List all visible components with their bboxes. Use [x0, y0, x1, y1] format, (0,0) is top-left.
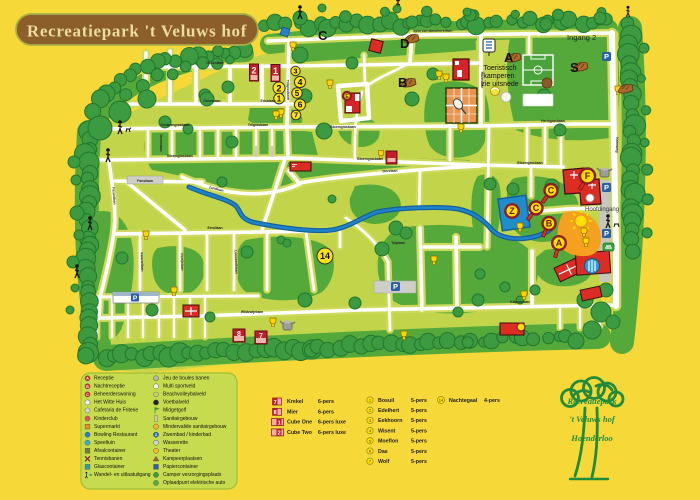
svg-text:Sanitairgebouw: Sanitairgebouw — [163, 416, 198, 422]
svg-text:Eendlaan: Eendlaan — [207, 226, 222, 230]
svg-text:Het Witte Huis: Het Witte Huis — [94, 400, 126, 406]
svg-text:Beachvolleybalveld: Beachvolleybalveld — [163, 392, 206, 398]
svg-text:Cafetaria de Friterie: Cafetaria de Friterie — [94, 408, 138, 414]
svg-text:Supermarkt: Supermarkt — [94, 424, 120, 430]
svg-text:Nachtreceptie: Nachtreceptie — [94, 384, 125, 390]
svg-text:Ossenlaan: Ossenlaan — [159, 134, 163, 151]
svg-text:Wisent: Wisent — [378, 428, 396, 434]
svg-text:7: 7 — [294, 111, 298, 120]
svg-text:A: A — [556, 238, 563, 248]
svg-text:2: 2 — [251, 65, 256, 75]
svg-text:Leeuweriklaan: Leeuweriklaan — [234, 250, 239, 274]
svg-text:6-pers: 6-pers — [318, 399, 334, 405]
svg-text:Tennisbanen: Tennisbanen — [94, 456, 123, 462]
svg-text:Mindervalide sanitairgebouw: Mindervalide sanitairgebouw — [163, 424, 227, 430]
svg-text:8: 8 — [274, 410, 277, 416]
svg-text:Midgetgolf: Midgetgolf — [163, 408, 187, 414]
svg-text:A: A — [504, 50, 514, 65]
svg-text:Cube Two: Cube Two — [287, 430, 313, 436]
svg-text:Eekhoorn: Eekhoorn — [378, 418, 402, 424]
svg-text:P: P — [604, 229, 609, 238]
svg-text:4: 4 — [298, 77, 303, 87]
svg-text:Glascontainer: Glascontainer — [94, 464, 125, 470]
svg-text:Kem van Meenhorstlaan: Kem van Meenhorstlaan — [413, 29, 452, 34]
svg-text:Jeu de boules banen: Jeu de boules banen — [163, 376, 210, 382]
svg-text:5-pers: 5-pers — [411, 408, 427, 414]
svg-text:P: P — [604, 183, 609, 192]
svg-text:Wandel- en uitlaatuitgang: Wandel- en uitlaatuitgang — [94, 472, 151, 478]
svg-text:Nachtegaal: Nachtegaal — [449, 398, 478, 404]
svg-text:D: D — [400, 36, 409, 51]
svg-text:'t Veluws hof: 't Veluws hof — [569, 414, 616, 424]
svg-text:Klaproslaan: Klaproslaan — [510, 300, 529, 304]
svg-text:Tulplaan: Tulplaan — [391, 241, 405, 245]
svg-text:Kinderclub: Kinderclub — [94, 416, 118, 422]
svg-text:Speeltuin: Speeltuin — [94, 440, 115, 446]
svg-text:Bloemgrasbaan: Bloemgrasbaan — [167, 154, 192, 158]
svg-text:5-pers: 5-pers — [411, 439, 427, 445]
svg-text:Patrijslaan: Patrijslaan — [180, 253, 185, 270]
svg-text:C: C — [533, 203, 540, 213]
svg-text:C: C — [548, 186, 555, 196]
svg-text:Recreatiepark: Recreatiepark — [566, 396, 617, 406]
svg-text:P: P — [604, 52, 609, 61]
svg-text:5-pers: 5-pers — [411, 428, 427, 434]
svg-text:Cube One: Cube One — [287, 420, 312, 426]
svg-text:2: 2 — [278, 431, 281, 437]
svg-text:Das: Das — [378, 449, 388, 455]
svg-text:2: 2 — [276, 83, 281, 93]
svg-text:Edelhert: Edelhert — [378, 408, 399, 414]
svg-text:5-pers: 5-pers — [411, 459, 427, 465]
svg-text:Z: Z — [509, 206, 515, 216]
svg-text:14: 14 — [439, 398, 444, 403]
svg-text:3: 3 — [293, 67, 297, 76]
svg-text:Moeflon: Moeflon — [378, 439, 398, 445]
svg-text:Ossenlaan: Ossenlaan — [203, 99, 220, 103]
svg-text:Krekel: Krekel — [287, 399, 304, 405]
svg-text:Oplaadpunt elektrische auto: Oplaadpunt elektrische auto — [163, 480, 225, 486]
svg-text:6-pers luxe: 6-pers luxe — [318, 430, 346, 436]
svg-text:Onzelaan: Onzelaan — [382, 169, 397, 174]
svg-text:C: C — [86, 393, 89, 397]
svg-text:Kwartellaan: Kwartellaan — [140, 252, 145, 271]
svg-text:Multi sportveld: Multi sportveld — [163, 384, 195, 390]
svg-text:A: A — [86, 377, 89, 381]
svg-text:1: 1 — [277, 95, 282, 104]
svg-text:1: 1 — [273, 66, 278, 76]
svg-text:Receptie: Receptie — [94, 376, 114, 382]
svg-text:Ossenlaan: Ossenlaan — [206, 61, 223, 65]
svg-text:Hoenderloo: Hoenderloo — [570, 433, 613, 443]
svg-text:Bloemgrasbaan: Bloemgrasbaan — [517, 161, 542, 165]
svg-text:P: P — [133, 295, 138, 302]
svg-text:Zwembad / kinderbad: Zwembad / kinderbad — [163, 432, 211, 438]
svg-text:S: S — [570, 60, 579, 75]
svg-text:14: 14 — [320, 251, 330, 261]
svg-text:Beheerderswoning: Beheerderswoning — [94, 392, 136, 398]
svg-text:Papiercontainer: Papiercontainer — [163, 464, 198, 470]
svg-text:1: 1 — [278, 420, 281, 426]
svg-text:5-pers: 5-pers — [411, 449, 427, 455]
svg-text:Kampeerplaatsen: Kampeerplaatsen — [163, 456, 202, 462]
svg-text:Wildzwijnlaan: Wildzwijnlaan — [241, 310, 263, 314]
svg-text:Hazenlaan: Hazenlaan — [480, 72, 484, 89]
svg-text:5-pers: 5-pers — [411, 398, 427, 404]
svg-text:6-pers luxe: 6-pers luxe — [318, 420, 346, 426]
svg-text:zie uitsnede: zie uitsnede — [481, 81, 518, 88]
svg-text:Ingang 2: Ingang 2 — [567, 33, 596, 42]
svg-text:7: 7 — [274, 400, 277, 406]
svg-text:Recreatiepark 't Veluws hof: Recreatiepark 't Veluws hof — [27, 22, 247, 41]
svg-text:B: B — [86, 385, 89, 389]
svg-text:5: 5 — [295, 89, 300, 98]
svg-text:Camper verzorgingsplaats: Camper verzorgingsplaats — [163, 472, 222, 478]
svg-text:7: 7 — [259, 333, 263, 340]
svg-text:Bloemgrasbaan: Bloemgrasbaan — [330, 125, 355, 129]
svg-text:F: F — [585, 171, 591, 181]
svg-text:Bosuil: Bosuil — [378, 398, 395, 404]
svg-text:P: P — [393, 282, 398, 291]
svg-text:Mier: Mier — [287, 409, 298, 415]
svg-text:Bowling Restaurant: Bowling Restaurant — [94, 432, 138, 438]
svg-text:5-pers: 5-pers — [411, 418, 427, 424]
svg-text:kamperen: kamperen — [483, 73, 514, 80]
svg-text:Trilgrasbaan: Trilgrasbaan — [248, 123, 268, 127]
svg-text:Afvalcontainer: Afvalcontainer — [94, 448, 126, 454]
svg-text:Toeristisch: Toeristisch — [483, 65, 516, 72]
svg-text:Wolf: Wolf — [378, 459, 390, 465]
svg-text:C: C — [318, 28, 328, 43]
svg-text:Wasserette: Wasserette — [163, 440, 188, 446]
svg-text:6-pers: 6-pers — [318, 409, 334, 415]
svg-text:6: 6 — [298, 100, 303, 110]
svg-text:8: 8 — [237, 331, 241, 338]
svg-text:Ericalaan: Ericalaan — [260, 99, 275, 103]
svg-text:4-pers: 4-pers — [484, 398, 500, 404]
svg-text:Bloemgrasbaan: Bloemgrasbaan — [357, 157, 382, 161]
svg-text:Krimweg: Krimweg — [615, 137, 619, 152]
svg-text:Schapengrasbaan: Schapengrasbaan — [160, 123, 189, 127]
svg-text:Theater: Theater — [163, 448, 181, 454]
svg-text:Trilgrasbaan: Trilgrasbaan — [286, 80, 291, 100]
svg-text:B: B — [546, 219, 553, 229]
svg-text:Voetbalveld: Voetbalveld — [163, 400, 189, 406]
svg-text:Hoofdingang: Hoofdingang — [585, 207, 619, 213]
svg-text:Heringrasbaan: Heringrasbaan — [541, 119, 565, 123]
svg-text:Fonsilaan: Fonsilaan — [137, 179, 153, 183]
svg-text:B: B — [398, 75, 407, 90]
